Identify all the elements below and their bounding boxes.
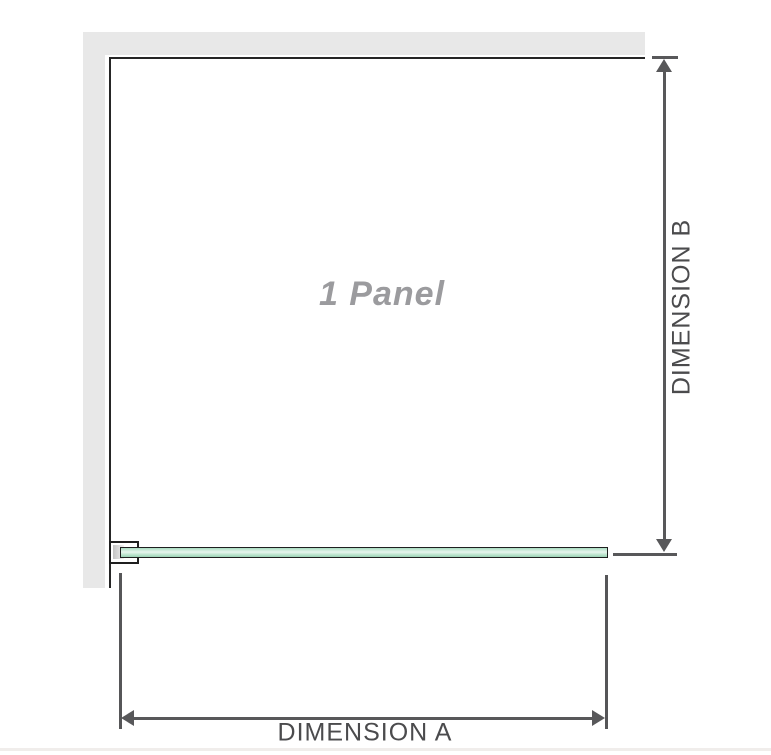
panel-dimension-diagram: 1 Panel DIMENSION B DIMENSION A [0, 0, 771, 755]
dimension-b-label: DIMENSION B [668, 219, 697, 395]
glass-panel [120, 547, 608, 558]
panel-outline-top [109, 57, 645, 59]
panel-outline-left-upper [109, 57, 111, 541]
dimension-a-arrow-right-icon [592, 710, 605, 726]
panel-label: 1 Panel [232, 275, 532, 314]
dimension-b-arrow-up-icon [656, 59, 672, 72]
dimension-b-line [663, 70, 666, 542]
dimension-a-label: DIMENSION A [278, 719, 453, 748]
wall-top [83, 32, 645, 55]
dimension-a-extension-line-left [119, 573, 122, 729]
dimension-a-arrow-left-icon [121, 710, 134, 726]
dimension-a-extension-line-right [605, 575, 608, 729]
panel-outline-left-lower [109, 562, 111, 588]
wall-left [83, 32, 105, 588]
dimension-b-arrow-down-icon [656, 539, 672, 552]
dimension-b-cap-bottom [613, 553, 677, 556]
page-divider [0, 748, 771, 751]
